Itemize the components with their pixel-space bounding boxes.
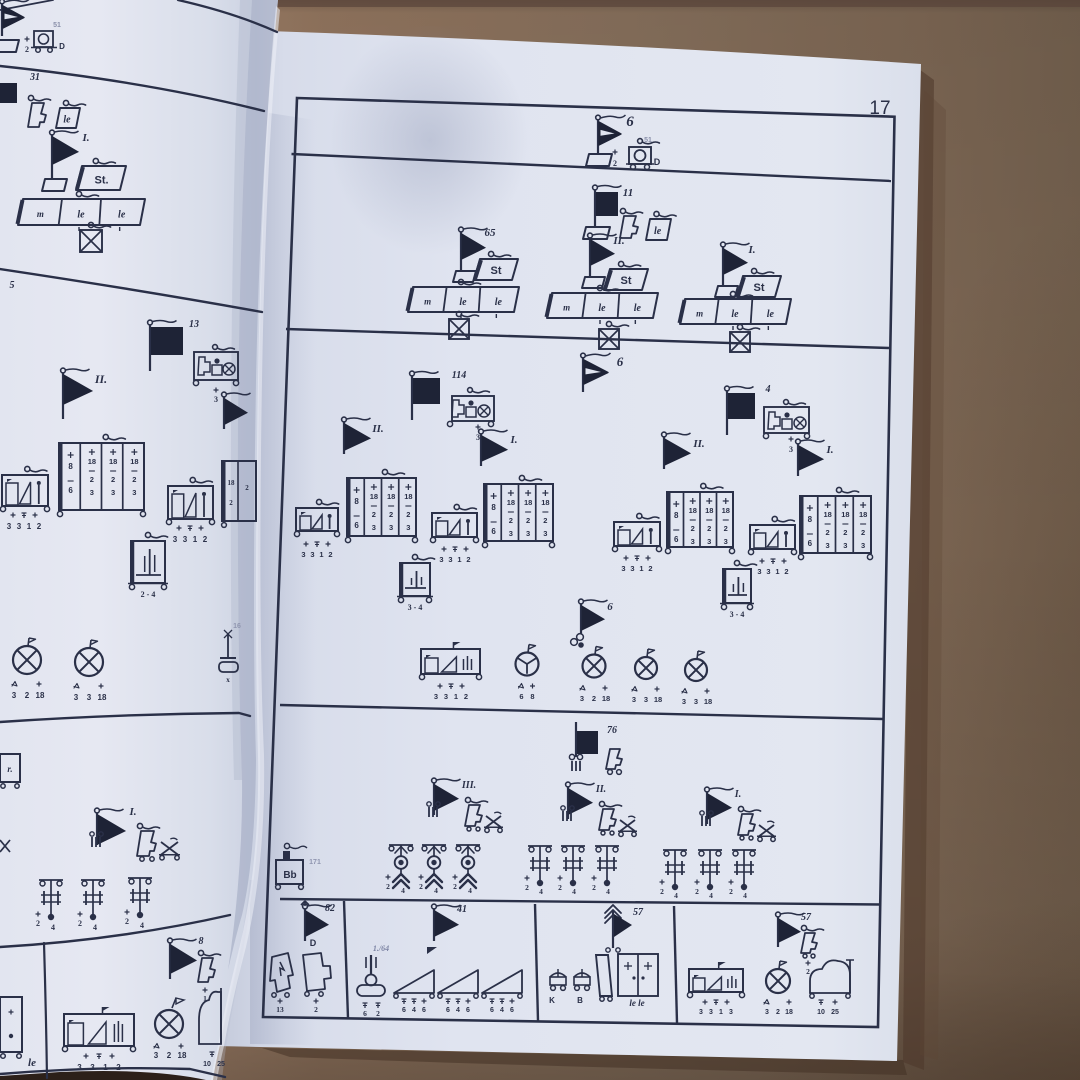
svg-text:2: 2	[691, 524, 695, 533]
svg-text:le: le	[731, 309, 739, 320]
svg-text:10: 10	[203, 1061, 211, 1068]
svg-text:3: 3	[789, 445, 793, 454]
svg-text:le: le	[634, 303, 642, 314]
svg-text:3: 3	[154, 1051, 159, 1060]
svg-text:6: 6	[510, 1007, 514, 1014]
svg-text:3: 3	[90, 1063, 95, 1072]
svg-text:8: 8	[674, 511, 679, 520]
svg-text:3: 3	[214, 395, 218, 404]
svg-text:2: 2	[36, 919, 40, 928]
svg-text:II.: II.	[371, 423, 383, 435]
svg-text:x: x	[226, 676, 230, 684]
svg-text:2: 2	[843, 528, 847, 537]
svg-text:4: 4	[468, 886, 472, 895]
svg-text:18: 18	[370, 492, 378, 501]
svg-text:3: 3	[372, 523, 376, 532]
svg-text:3: 3	[87, 693, 92, 702]
svg-text:II.: II.	[94, 372, 107, 386]
svg-text:3: 3	[111, 488, 115, 497]
svg-text:3: 3	[132, 488, 136, 497]
svg-text:3: 3	[709, 1009, 713, 1016]
svg-text:3: 3	[310, 550, 314, 559]
svg-text:6: 6	[68, 486, 73, 495]
svg-text:57: 57	[801, 912, 812, 923]
svg-text:1./64: 1./64	[373, 944, 389, 953]
svg-text:m: m	[424, 297, 431, 307]
svg-text:18: 18	[109, 457, 117, 466]
svg-text:41: 41	[456, 904, 467, 915]
svg-text:3: 3	[434, 692, 438, 701]
svg-text:3: 3	[183, 535, 188, 544]
svg-text:1: 1	[193, 535, 198, 544]
svg-text:6: 6	[490, 1007, 494, 1014]
svg-text:18: 18	[228, 479, 236, 487]
svg-text:3: 3	[691, 537, 695, 546]
svg-text:3: 3	[699, 1009, 703, 1016]
svg-text:76: 76	[607, 725, 617, 736]
svg-text:18: 18	[36, 691, 45, 700]
svg-text:18: 18	[404, 492, 412, 501]
svg-text:2: 2	[543, 516, 547, 525]
svg-text:D: D	[59, 42, 65, 51]
svg-text:2: 2	[526, 516, 530, 525]
svg-text:I.: I.	[509, 434, 517, 446]
svg-text:4: 4	[51, 923, 55, 932]
svg-text:B: B	[577, 996, 583, 1005]
svg-text:6: 6	[491, 527, 496, 536]
svg-text:6: 6	[446, 1007, 450, 1014]
svg-text:2: 2	[464, 692, 468, 701]
svg-text:2: 2	[132, 475, 136, 484]
svg-text:3: 3	[90, 488, 94, 497]
svg-text:3: 3	[861, 541, 865, 550]
svg-text:3: 3	[765, 1009, 769, 1016]
svg-text:3: 3	[757, 567, 761, 576]
svg-text:D: D	[310, 938, 317, 948]
svg-text:51: 51	[53, 22, 61, 29]
svg-text:3: 3	[74, 693, 79, 702]
svg-text:2: 2	[25, 45, 29, 54]
svg-text:4: 4	[434, 886, 438, 895]
svg-text:8: 8	[530, 692, 534, 701]
svg-text:2: 2	[37, 522, 42, 531]
svg-text:3: 3	[729, 1009, 733, 1016]
svg-text:2: 2	[372, 510, 376, 519]
svg-text:4: 4	[500, 1007, 504, 1014]
svg-text:4: 4	[709, 891, 713, 900]
svg-text:3: 3	[12, 691, 17, 700]
svg-text:2: 2	[386, 882, 390, 891]
svg-text:3: 3	[439, 555, 443, 564]
svg-text:2: 2	[406, 510, 410, 519]
svg-text:2: 2	[376, 1009, 380, 1018]
svg-text:8: 8	[808, 515, 813, 524]
svg-text:2: 2	[78, 919, 82, 928]
svg-text:1: 1	[457, 555, 461, 564]
svg-text:4: 4	[606, 887, 610, 896]
svg-text:3: 3	[301, 550, 305, 559]
svg-text:le le: le le	[629, 998, 644, 1008]
svg-text:6: 6	[354, 521, 359, 530]
svg-text:8: 8	[199, 936, 204, 947]
svg-text:2: 2	[419, 882, 423, 891]
svg-text:18: 18	[88, 457, 96, 466]
svg-text:25: 25	[217, 1061, 225, 1068]
svg-text:r.: r.	[7, 764, 12, 774]
svg-text:4: 4	[539, 887, 543, 896]
svg-text:6: 6	[607, 601, 613, 613]
svg-text:18: 18	[602, 694, 610, 703]
svg-text:18: 18	[704, 697, 712, 706]
svg-text:3: 3	[707, 537, 711, 546]
svg-text:6: 6	[466, 1007, 470, 1014]
svg-text:2: 2	[613, 159, 617, 168]
svg-text:2: 2	[167, 1051, 172, 1060]
svg-text:3: 3	[724, 537, 728, 546]
svg-text:3: 3	[77, 1063, 82, 1072]
svg-text:2: 2	[389, 510, 393, 519]
svg-text:18: 18	[541, 498, 549, 507]
svg-text:2: 2	[660, 887, 664, 896]
svg-text:3: 3	[644, 695, 648, 704]
svg-text:3: 3	[17, 522, 22, 531]
svg-text:18: 18	[785, 1009, 793, 1016]
svg-text:3: 3	[826, 541, 830, 550]
svg-text:3: 3	[694, 697, 698, 706]
svg-text:2: 2	[729, 887, 733, 896]
svg-text:18: 18	[705, 506, 713, 515]
svg-text:1: 1	[639, 564, 643, 573]
svg-text:8: 8	[491, 503, 496, 512]
svg-text:13: 13	[189, 319, 199, 330]
svg-text:2: 2	[328, 550, 332, 559]
svg-text:18: 18	[859, 510, 867, 519]
svg-text:18: 18	[178, 1051, 187, 1060]
svg-text:6: 6	[626, 114, 634, 130]
svg-text:le: le	[28, 1057, 36, 1069]
svg-text:3: 3	[509, 529, 513, 538]
svg-text:1: 1	[719, 1009, 723, 1016]
svg-text:4: 4	[140, 921, 144, 930]
svg-text:2: 2	[466, 555, 470, 564]
svg-text:K: K	[549, 996, 555, 1005]
svg-text:8: 8	[354, 497, 359, 506]
svg-text:2: 2	[509, 516, 513, 525]
svg-text:St.: St.	[94, 174, 108, 186]
svg-text:3: 3	[543, 529, 547, 538]
svg-text:le: le	[495, 297, 503, 308]
svg-text:6: 6	[617, 354, 624, 369]
svg-text:I.: I.	[825, 444, 833, 456]
svg-text:4: 4	[743, 891, 747, 900]
svg-text:m: m	[37, 209, 44, 219]
svg-text:2: 2	[592, 883, 596, 892]
svg-text:3: 3	[526, 529, 530, 538]
svg-text:171: 171	[309, 859, 321, 866]
svg-text:8: 8	[68, 462, 73, 471]
svg-text:II.: II.	[612, 235, 624, 247]
svg-text:St: St	[491, 265, 502, 277]
svg-text:3: 3	[843, 541, 847, 550]
svg-text:3: 3	[621, 564, 625, 573]
svg-text:6: 6	[674, 535, 679, 544]
svg-text:2 - 4: 2 - 4	[141, 590, 156, 599]
svg-text:2: 2	[592, 694, 596, 703]
svg-text:18: 18	[130, 457, 138, 466]
svg-text:Bb: Bb	[283, 870, 296, 881]
svg-text:1: 1	[319, 550, 323, 559]
svg-text:le: le	[63, 114, 71, 125]
svg-text:2: 2	[125, 917, 129, 926]
svg-text:2: 2	[695, 887, 699, 896]
svg-text:6: 6	[808, 539, 813, 548]
svg-text:2: 2	[314, 1005, 318, 1014]
svg-text:le: le	[459, 297, 467, 308]
svg-text:4: 4	[93, 923, 97, 932]
svg-text:6: 6	[422, 1007, 426, 1014]
svg-text:18: 18	[387, 492, 395, 501]
svg-text:D: D	[654, 157, 661, 167]
svg-text:2: 2	[453, 882, 457, 891]
svg-text:5: 5	[10, 280, 15, 291]
svg-text:6: 6	[402, 1007, 406, 1014]
svg-text:3: 3	[632, 695, 636, 704]
svg-text:25: 25	[831, 1009, 839, 1016]
svg-text:18: 18	[654, 695, 662, 704]
svg-text:III.: III.	[461, 780, 476, 791]
svg-text:10: 10	[817, 1009, 825, 1016]
svg-text:2: 2	[784, 567, 788, 576]
svg-text:3: 3	[580, 694, 584, 703]
svg-text:1: 1	[454, 692, 458, 701]
svg-text:18: 18	[507, 498, 515, 507]
svg-text:2: 2	[707, 524, 711, 533]
svg-text:2: 2	[861, 528, 865, 537]
svg-text:6: 6	[363, 1009, 367, 1018]
svg-text:3: 3	[630, 564, 634, 573]
svg-text:St: St	[754, 282, 765, 294]
svg-text:51: 51	[644, 137, 652, 144]
svg-text:II.: II.	[692, 438, 704, 450]
svg-text:1: 1	[775, 567, 779, 576]
svg-text:114: 114	[452, 370, 466, 381]
svg-text:3 - 4: 3 - 4	[408, 603, 423, 612]
svg-text:2: 2	[203, 535, 208, 544]
svg-text:m: m	[563, 303, 570, 313]
svg-text:3: 3	[7, 522, 12, 531]
svg-text:2: 2	[826, 528, 830, 537]
svg-text:2: 2	[229, 499, 233, 507]
svg-text:18: 18	[722, 506, 730, 515]
svg-text:4: 4	[401, 886, 405, 895]
svg-text:I.: I.	[81, 132, 89, 144]
svg-text:18: 18	[524, 498, 532, 507]
svg-text:16: 16	[233, 623, 241, 630]
svg-text:le: le	[118, 210, 126, 221]
svg-text:2: 2	[245, 484, 249, 492]
svg-text:3: 3	[682, 697, 686, 706]
svg-text:3: 3	[406, 523, 410, 532]
svg-text:3: 3	[444, 692, 448, 701]
svg-text:18: 18	[841, 510, 849, 519]
svg-text:le: le	[767, 309, 775, 320]
svg-text:4: 4	[674, 891, 678, 900]
svg-text:18: 18	[689, 506, 697, 515]
svg-text:2: 2	[90, 475, 94, 484]
svg-text:2: 2	[111, 475, 115, 484]
svg-text:13: 13	[276, 1005, 284, 1014]
svg-text:4: 4	[456, 1007, 460, 1014]
svg-text:St: St	[621, 275, 632, 287]
svg-text:3: 3	[476, 433, 480, 442]
svg-text:I.: I.	[734, 789, 741, 800]
svg-text:3: 3	[389, 523, 393, 532]
svg-text:2: 2	[724, 524, 728, 533]
svg-text:6: 6	[519, 692, 523, 701]
svg-text:57: 57	[633, 907, 644, 918]
svg-text:3: 3	[448, 555, 452, 564]
svg-text:2: 2	[25, 691, 30, 700]
svg-text:I.: I.	[128, 806, 136, 818]
svg-text:2: 2	[648, 564, 652, 573]
svg-text:11: 11	[623, 187, 633, 199]
svg-text:le: le	[77, 210, 85, 221]
svg-text:2: 2	[776, 1009, 780, 1016]
svg-text:m: m	[696, 309, 703, 319]
svg-text:4: 4	[765, 384, 771, 395]
svg-text:18: 18	[823, 510, 831, 519]
svg-text:31: 31	[29, 72, 40, 83]
svg-text:82: 82	[325, 903, 335, 914]
svg-text:1: 1	[27, 522, 32, 531]
svg-text:2: 2	[525, 883, 529, 892]
svg-text:le: le	[598, 303, 606, 314]
svg-text:3: 3	[766, 567, 770, 576]
svg-text:II.: II.	[595, 784, 606, 795]
svg-text:3: 3	[173, 535, 178, 544]
svg-text:I.: I.	[747, 244, 755, 256]
svg-text:3 - 4: 3 - 4	[730, 610, 745, 619]
svg-text:18: 18	[98, 693, 107, 702]
svg-text:4: 4	[572, 887, 576, 896]
svg-text:le: le	[654, 226, 662, 237]
svg-text:65: 65	[485, 227, 497, 239]
svg-text:2: 2	[558, 883, 562, 892]
svg-text:2: 2	[806, 967, 810, 976]
svg-text:4: 4	[412, 1007, 416, 1014]
